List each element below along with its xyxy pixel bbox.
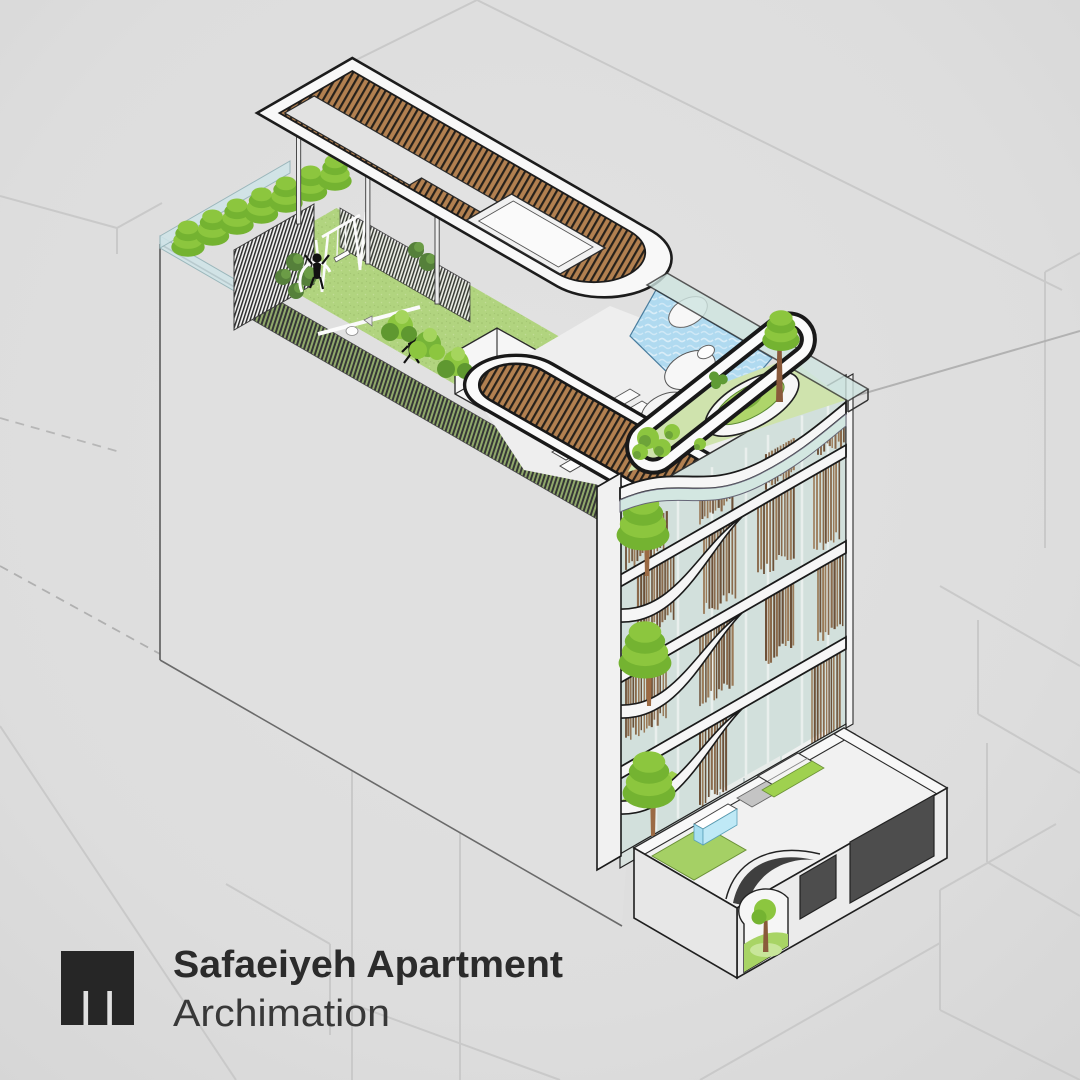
svg-text:Archimation: Archimation — [173, 993, 390, 1035]
svg-text:Safaeiyeh Apartment: Safaeiyeh Apartment — [173, 944, 563, 986]
